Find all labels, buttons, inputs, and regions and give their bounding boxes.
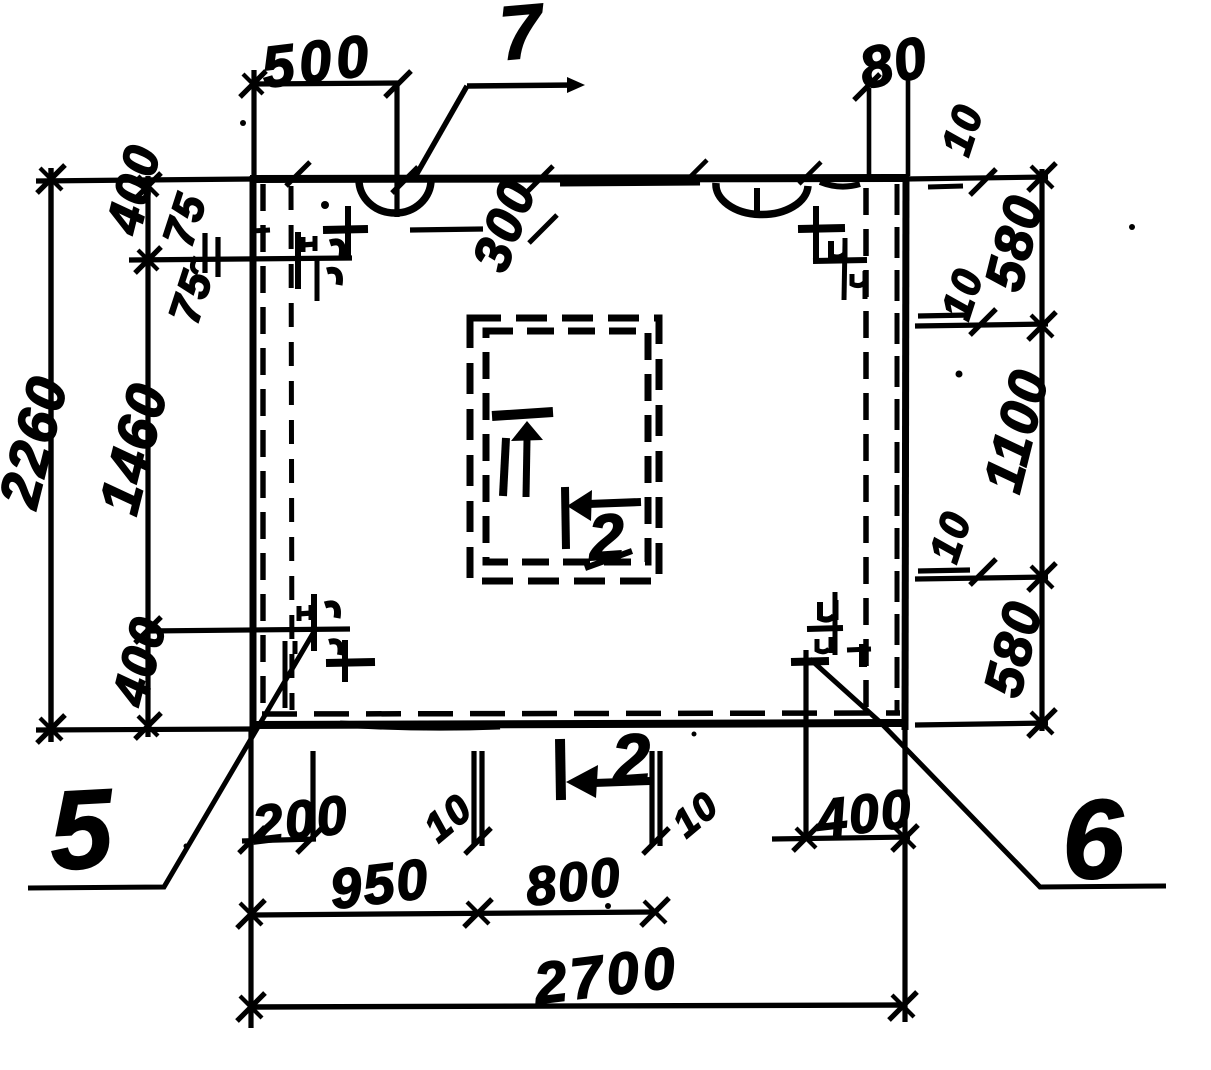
svg-text:6: 6 bbox=[1059, 775, 1130, 903]
svg-text:10: 10 bbox=[932, 98, 992, 161]
svg-text:5: 5 bbox=[47, 765, 118, 893]
svg-text:1460: 1460 bbox=[86, 376, 179, 520]
svg-text:300: 300 bbox=[462, 172, 548, 279]
svg-text:7: 7 bbox=[496, 0, 549, 77]
svg-text:400: 400 bbox=[101, 611, 177, 712]
svg-text:75: 75 bbox=[160, 264, 223, 330]
svg-text:2: 2 bbox=[607, 719, 655, 800]
svg-text:500: 500 bbox=[258, 23, 377, 101]
svg-text:2260: 2260 bbox=[0, 369, 80, 514]
svg-text:200: 200 bbox=[248, 785, 352, 856]
svg-text:10: 10 bbox=[665, 784, 727, 846]
svg-text:400: 400 bbox=[812, 779, 916, 850]
svg-text:80: 80 bbox=[854, 24, 935, 102]
svg-text:10: 10 bbox=[920, 505, 980, 568]
svg-text:950: 950 bbox=[326, 846, 432, 921]
svg-text:1100: 1100 bbox=[972, 363, 1060, 498]
